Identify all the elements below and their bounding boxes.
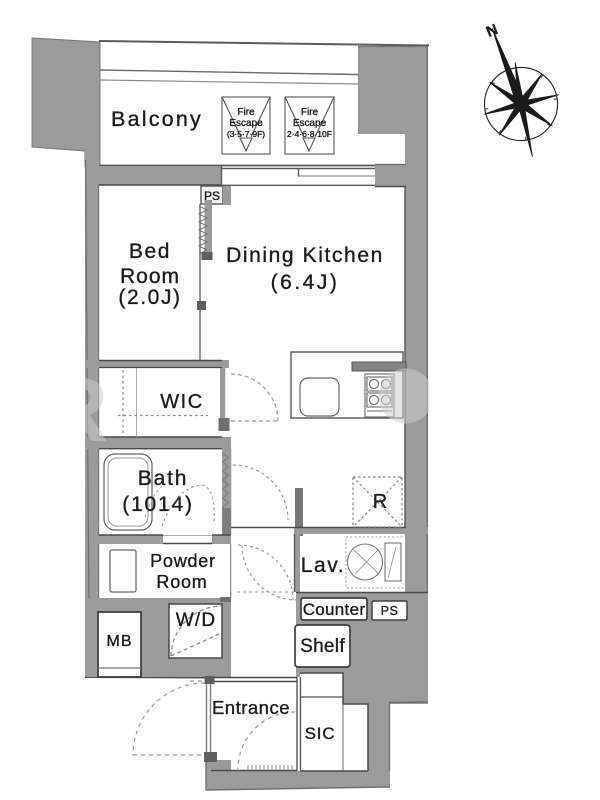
svg-text:MB: MB	[107, 633, 133, 650]
svg-text:Shelf: Shelf	[300, 636, 345, 657]
svg-text:Bath: Bath	[138, 467, 188, 490]
svg-text:Bed: Bed	[129, 240, 171, 263]
svg-text:Entrance: Entrance	[212, 697, 290, 718]
svg-text:WIC: WIC	[160, 391, 203, 413]
svg-text:Powder: Powder	[150, 551, 216, 571]
svg-text:Escape: Escape	[229, 118, 263, 129]
svg-text:(2.0J): (2.0J)	[118, 286, 181, 309]
svg-text:W/D: W/D	[176, 610, 217, 631]
svg-text:(6.4J): (6.4J)	[271, 271, 340, 294]
svg-text:Room: Room	[156, 572, 207, 592]
svg-text:Counter: Counter	[303, 600, 366, 619]
svg-text:Fire: Fire	[237, 107, 255, 118]
svg-text:Dining Kitchen: Dining Kitchen	[226, 244, 384, 267]
svg-text:R: R	[373, 491, 387, 513]
svg-text:Escape: Escape	[293, 118, 327, 129]
svg-text:2·4·6·8·10F: 2·4·6·8·10F	[287, 129, 332, 139]
svg-text:Room: Room	[120, 265, 180, 288]
svg-text:Lav.: Lav.	[301, 554, 346, 577]
svg-text:(3·5·7·9F): (3·5·7·9F)	[227, 129, 265, 139]
svg-text:PS: PS	[381, 604, 399, 618]
svg-text:(1014): (1014)	[122, 493, 194, 516]
svg-text:Fire: Fire	[301, 107, 319, 118]
svg-text:Balcony: Balcony	[111, 107, 203, 131]
svg-text:SIC: SIC	[305, 724, 336, 743]
